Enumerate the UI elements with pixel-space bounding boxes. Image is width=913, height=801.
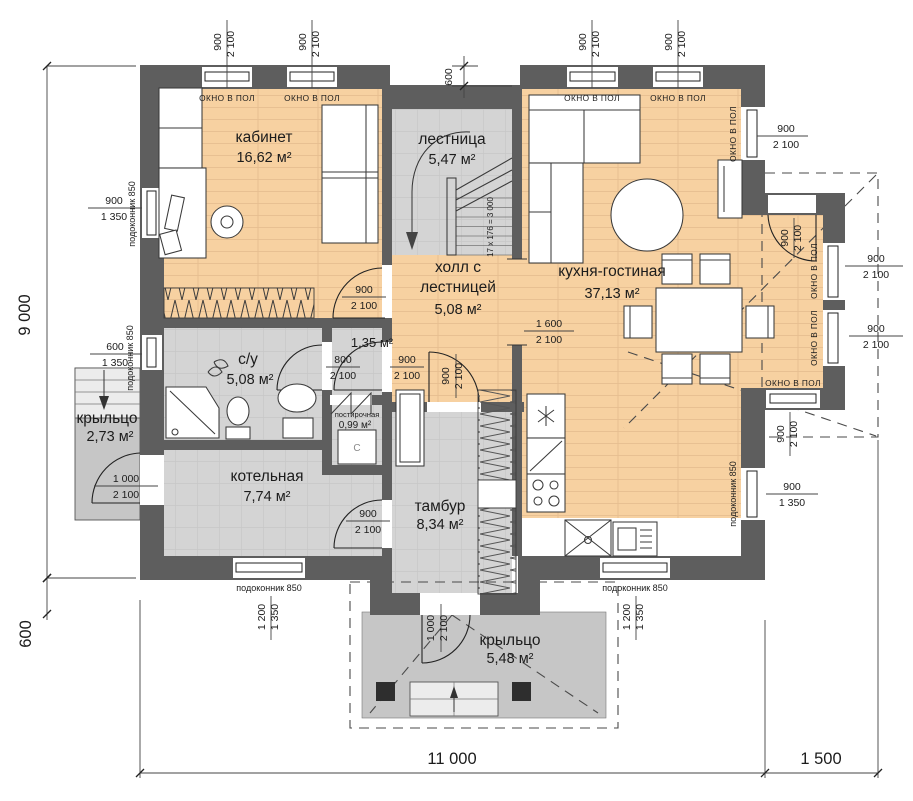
boiler-name: котельная — [231, 468, 304, 485]
dim-opening-h: 2 100 — [536, 334, 562, 346]
kitchen-name: кухня-гостиная — [558, 263, 666, 280]
porch-column-right — [512, 682, 531, 701]
dim-right-top-w: 900 — [777, 123, 795, 135]
window-bottom-right — [600, 558, 670, 578]
dim-bay2-h: 2 100 — [863, 339, 889, 351]
dim-terrace-width: 1 500 — [800, 750, 841, 768]
toilet-tank — [226, 427, 250, 439]
floor-plan-drawing: С — [0, 0, 913, 801]
porch-bottom-name: крыльцо — [480, 632, 541, 649]
dim-top-w2-w: 900 — [297, 33, 309, 51]
dim-closet-door-w: 900 — [398, 354, 416, 366]
sill-label-left-2: подоконник 850 — [125, 325, 135, 390]
tambur-name: тамбур — [415, 498, 466, 515]
dim-hall-tambur-door-w: 900 — [440, 367, 452, 385]
dim-su-door-h: 2 100 — [330, 370, 356, 382]
dim-top-w4-w: 900 — [663, 33, 675, 51]
dim-total-width: 11 000 — [427, 750, 476, 768]
dim-su-door-w: 800 — [334, 354, 352, 366]
kabinet-area: 16,62 м² — [236, 150, 291, 166]
dim-bottom-left-w: 1 200 — [256, 604, 268, 630]
hob — [527, 474, 565, 512]
laundry-name: постирочная — [335, 410, 380, 419]
okno-label-7: ОКНО В ПОЛ — [809, 310, 819, 366]
dishwasher-unit — [613, 522, 657, 556]
dim-top-w1-w: 900 — [212, 33, 224, 51]
dim-opening-w: 1 600 — [536, 318, 562, 330]
laundry-fixtures: С — [338, 430, 376, 464]
dim-bay1-w: 900 — [867, 253, 885, 265]
kitchen-area: 37,13 м² — [584, 286, 639, 302]
dim-porch-offset: 600 — [17, 620, 35, 648]
sink-cabinet — [283, 418, 313, 438]
dim-closet-door-h: 2 100 — [394, 370, 420, 382]
porch-column-left — [376, 682, 395, 701]
kitchen-appliance-column — [527, 394, 565, 512]
dim-top-w2-h: 2 100 — [310, 31, 322, 57]
corner-sofa-side — [529, 163, 583, 263]
dim-kabinet-door-h: 2 100 — [351, 300, 377, 312]
lestnitsa-name: лестница — [418, 131, 486, 148]
window-left-2 — [142, 335, 162, 370]
porch-left-name: крыльцо — [77, 410, 138, 427]
dim-hall-tambur-door-h: 2 100 — [453, 363, 465, 389]
hall-name-line2: лестницей — [420, 279, 496, 296]
dim-bottom-right-w: 1 200 — [621, 604, 633, 630]
kabinet-wardrobe — [164, 288, 314, 318]
window-bay-1 — [823, 243, 845, 300]
toilet — [227, 397, 249, 425]
wardrobe-middle — [478, 480, 516, 508]
window-top-3 — [567, 67, 618, 87]
dim-bottom-right-h: 1 350 — [634, 604, 646, 630]
window-right-lower — [741, 468, 765, 520]
lestnitsa-area: 5,47 м² — [428, 152, 475, 168]
dim-top-w3-h: 2 100 — [590, 31, 602, 57]
hall-name-line1: холл с — [435, 259, 481, 276]
dim-boiler-door-h: 2 100 — [355, 524, 381, 536]
window-bay-bottom — [766, 390, 820, 408]
dim-bay-bottom-w: 900 — [775, 425, 787, 443]
okno-label-8: ОКНО В ПОЛ — [765, 378, 821, 388]
dim-boiler-door-w: 900 — [359, 508, 377, 520]
dim-total-height: 9 000 — [16, 294, 34, 335]
dim-top-w3-w: 900 — [577, 33, 589, 51]
hall-opening-floor — [512, 259, 522, 345]
dim-left-w2-w: 600 — [106, 341, 124, 353]
kabinet-sofa — [322, 105, 378, 243]
okno-label-3: ОКНО В ПОЛ — [564, 93, 620, 103]
dim-right-lower-w: 900 — [783, 481, 801, 493]
su-name: с/у — [238, 351, 258, 368]
window-right-top — [741, 107, 765, 160]
floor-plan-canvas: С — [0, 0, 913, 801]
okno-label-4: ОКНО В ПОЛ — [650, 93, 706, 103]
boiler-area: 7,74 м² — [243, 489, 290, 505]
dim-kabinet-door-w: 900 — [355, 284, 373, 296]
dim-porch-left-door-h: 2 100 — [113, 489, 139, 501]
washer-letter: С — [353, 443, 360, 454]
kabinet-name: кабинет — [235, 129, 292, 146]
porch-left-area: 2,73 м² — [86, 429, 133, 445]
dim-porch-left-door-w: 1 000 — [113, 473, 139, 485]
okno-label-6: ОКНО В ПОЛ — [809, 243, 819, 299]
dim-left-w1-h: 1 350 — [101, 211, 127, 223]
dim-niche-600: 600 — [443, 68, 455, 86]
sink — [278, 384, 316, 412]
window-bottom-left — [233, 558, 305, 578]
sill-label-bottom-left: подоконник 850 — [236, 583, 301, 593]
su-area: 5,08 м² — [226, 372, 273, 388]
dim-bottom-left-h: 1 350 — [269, 604, 281, 630]
window-bay-2 — [823, 310, 845, 366]
dim-right-top-h: 2 100 — [773, 139, 799, 151]
dim-tambur-door-w: 1 000 — [425, 615, 437, 641]
porch-bottom-area: 5,48 м² — [486, 651, 533, 667]
dim-terrace-door-h: 2 100 — [792, 225, 804, 251]
dining-table — [656, 288, 742, 352]
dim-top-w1-h: 2 100 — [225, 31, 237, 57]
closet-area: 1,35 м² — [351, 335, 394, 350]
dim-terrace-door-w: 900 — [779, 229, 791, 247]
stairs-formula-label: 17 x 176 = 3 000 — [486, 197, 495, 257]
wardrobe-bottom — [478, 508, 516, 594]
dim-bay2-w: 900 — [867, 323, 885, 335]
tambur-area: 8,34 м² — [416, 517, 463, 533]
laundry-area: 0,99 м² — [339, 420, 372, 431]
okno-label-5: ОКНО В ПОЛ — [728, 106, 738, 162]
tv-stand — [718, 160, 742, 218]
dim-top-w4-h: 2 100 — [676, 31, 688, 57]
okno-label-1: ОКНО В ПОЛ — [199, 93, 255, 103]
okno-label-2: ОКНО В ПОЛ — [284, 93, 340, 103]
office-chair — [211, 206, 243, 238]
dim-bay1-h: 2 100 — [863, 269, 889, 281]
sill-label-bottom-right: подоконник 850 — [602, 583, 667, 593]
kitchen-bottom-counter — [565, 520, 657, 556]
dim-bay-bottom-h: 2 100 — [788, 421, 800, 447]
dim-left-w1-w: 900 — [105, 195, 123, 207]
wardrobe-top — [478, 390, 516, 480]
sill-label-left-1: подоконник 850 — [127, 181, 137, 246]
round-rug — [611, 179, 683, 251]
hall-area: 5,08 м² — [434, 302, 481, 318]
sill-label-right: подоконник 850 — [728, 461, 738, 526]
dim-tambur-door-h: 2 100 — [438, 615, 450, 641]
dim-right-lower-h: 1 350 — [779, 497, 805, 509]
